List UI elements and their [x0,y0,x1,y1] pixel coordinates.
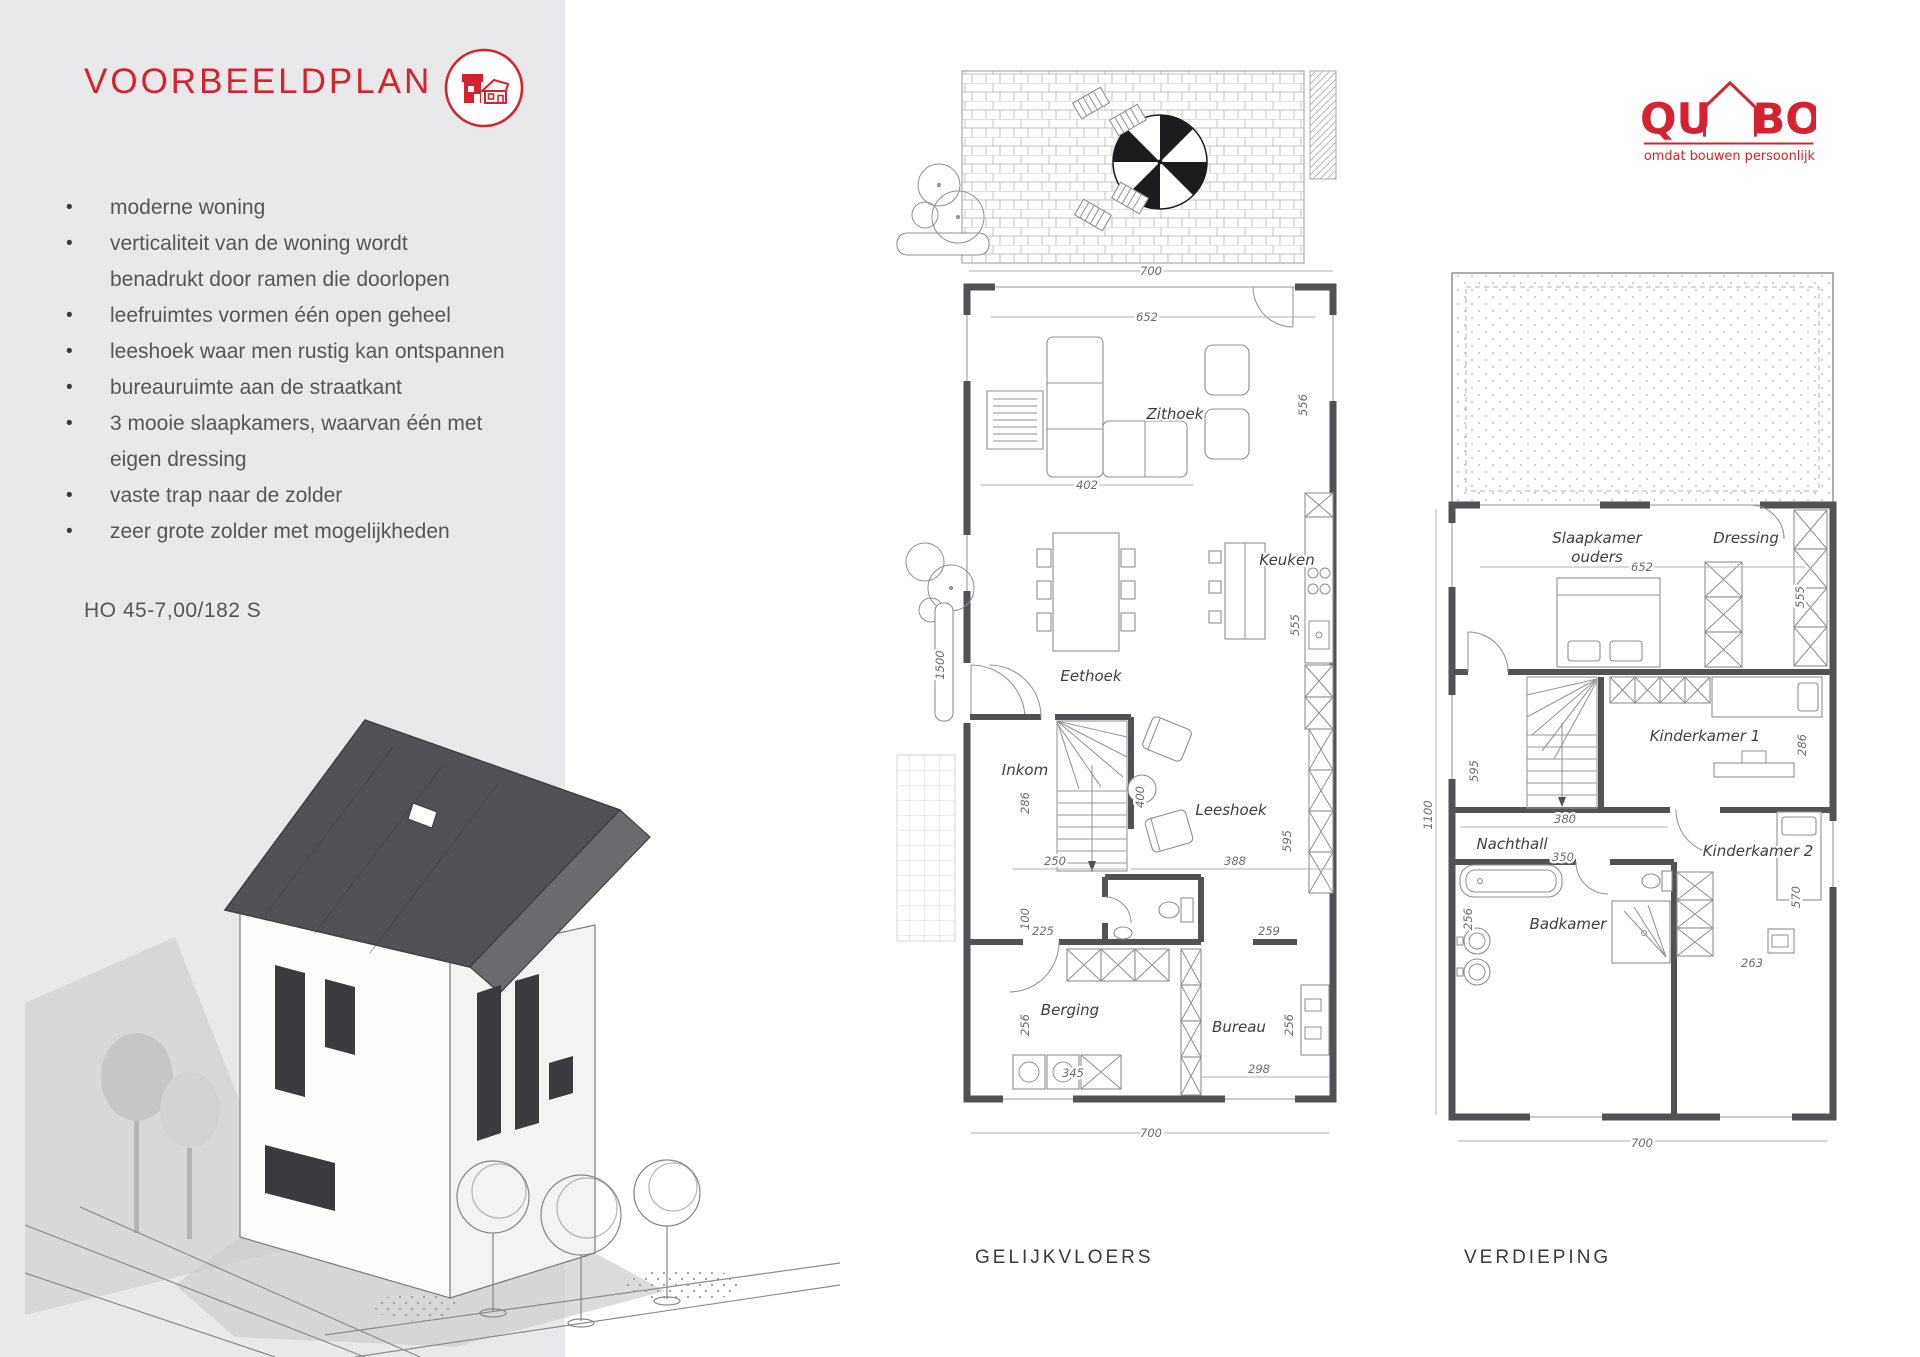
staircase [1527,677,1597,808]
list-item-text: moderne woning [110,196,265,220]
bullet-dot [66,448,110,449]
svg-text:298: 298 [1248,1062,1270,1076]
staircase [1057,721,1127,872]
room-label-zithoek: Zithoek [1146,405,1205,423]
zithoek-furniture [987,337,1249,477]
list-item: benadrukt door ramen die doorlopen [66,268,506,304]
svg-text:250: 250 [1044,854,1066,868]
room-label-slaapkamer-2: ouders [1571,548,1623,566]
list-item: •bureauruimte aan de straatkant [66,376,506,412]
list-item-text: vaste trap naar de zolder [110,484,342,508]
list-item: •zeer grote zolder met mogelijkheden [66,520,506,556]
bullet-dot: • [66,340,110,363]
svg-text:556: 556 [1296,394,1310,416]
svg-text:700: 700 [1631,1136,1653,1150]
svg-text:595: 595 [1280,830,1294,852]
planter [1310,71,1336,179]
room-label-kinderkamer2: Kinderkamer 2 [1703,842,1814,860]
svg-text:652: 652 [1631,560,1653,574]
svg-text:400: 400 [1133,786,1147,808]
svg-text:380: 380 [1554,812,1576,826]
bullet-dot: • [66,484,110,507]
caption-upper-floor: VERDIEPING [1464,1247,1611,1269]
logo-house-icon [1705,83,1756,137]
room-label-nachthall: Nachthall [1476,835,1548,853]
room-label-slaapkamer-1: Slaapkamer [1552,529,1642,547]
bullet-dot: • [66,304,110,327]
page-title: VOORBEELDPLAN [84,62,432,102]
list-item: eigen dressing [66,448,506,484]
feature-list: •moderne woning •verticaliteit van de wo… [66,196,506,556]
room-label-eethoek: Eethoek [1060,667,1123,685]
svg-text:345: 345 [1062,1066,1084,1080]
svg-text:256: 256 [1018,1014,1032,1036]
svg-text:1100: 1100 [1421,800,1435,829]
svg-text:1500: 1500 [933,650,947,679]
room-label-kinderkamer1: Kinderkamer 1 [1650,727,1761,745]
roof-terrace [1452,273,1833,505]
wc-fixtures [1114,898,1193,939]
list-item-text: zeer grote zolder met mogelijkheden [110,520,450,544]
room-label-leeshoek: Leeshoek [1195,801,1268,819]
slaapkamer-furniture [1557,578,1660,667]
eethoek-furniture [1037,533,1135,651]
dim-terrace-width: 700 [1140,264,1162,278]
caption-ground-floor: GELIJKVLOERS [975,1247,1154,1269]
list-item: •vaste trap naar de zolder [66,484,506,520]
bullet-dot: • [66,232,110,255]
berging-furniture [1013,949,1201,1095]
svg-text:652: 652 [1136,310,1158,324]
list-item-text: leeshoek waar men rustig kan ontspannen [110,340,505,364]
bullet-dot: • [66,412,110,435]
brochure-page: { "panel": { "title": "VOORBEELDPLAN", "… [0,0,1920,1357]
house [225,720,650,1298]
ground-floor-plan: 700 [895,65,1345,1150]
list-item: •3 mooie slaapkamers, waarvan één met [66,412,506,448]
svg-text:256: 256 [1461,908,1475,930]
list-item-text: leefruimtes vormen één open geheel [110,304,451,328]
house-sketch [25,585,840,1357]
svg-text:259: 259 [1258,924,1280,938]
shrubs [375,1293,459,1321]
entrance-path [897,755,955,941]
room-label-inkom: Inkom [1002,761,1048,779]
kinderkamer2-furniture [1677,812,1821,956]
shrubs [625,1269,745,1301]
list-item: •verticaliteit van de woning wordt [66,232,506,268]
svg-text:402: 402 [1076,478,1098,492]
bullet-dot: • [66,196,110,219]
list-item-text: 3 mooie slaapkamers, waarvan één met [110,412,482,436]
bullet-dot: • [66,520,110,543]
svg-text:555: 555 [1793,586,1807,608]
house-badge-icon [443,47,525,129]
svg-text:595: 595 [1467,760,1481,782]
svg-text:570: 570 [1789,886,1803,908]
logo-text-bo: BO [1752,95,1816,145]
svg-text:286: 286 [1795,734,1809,756]
room-label-dressing: Dressing [1713,529,1779,547]
svg-text:388: 388 [1224,854,1246,868]
svg-text:286: 286 [1018,792,1032,814]
svg-text:256: 256 [1282,1014,1296,1036]
svg-text:700: 700 [1140,1126,1162,1140]
svg-text:263: 263 [1741,956,1763,970]
terrace [897,71,1336,263]
room-label-berging: Berging [1041,1001,1099,1019]
qubo-logo: QU BO omdat bouwen persoonlijk is [1641,75,1816,165]
list-item-text: verticaliteit van de woning wordt [110,232,408,256]
interior-walls [970,665,1297,992]
list-item-text: benadrukt door ramen die doorlopen [110,268,450,292]
list-item: •leefruimtes vormen één open geheel [66,304,506,340]
room-label-badkamer: Badkamer [1530,915,1608,933]
svg-text:555: 555 [1288,614,1302,636]
list-item: •leeshoek waar men rustig kan ontspannen [66,340,506,376]
upper-floor-plan: 1100 652 555 595 286 380 350 570 256 263… [1420,265,1850,1172]
bullet-dot: • [66,376,110,399]
list-item-text: eigen dressing [110,448,247,472]
room-label-keuken: Keuken [1259,551,1314,569]
svg-text:350: 350 [1552,850,1574,864]
list-item: •moderne woning [66,196,506,232]
bureau-furniture [1301,985,1329,1055]
room-label-bureau: Bureau [1212,1018,1266,1036]
logo-tagline: omdat bouwen persoonlijk is [1644,149,1816,164]
list-item-text: bureauruimte aan de straatkant [110,376,402,400]
logo-text-qu: QU [1641,95,1711,145]
svg-text:225: 225 [1032,924,1054,938]
svg-text:100: 100 [1018,908,1032,930]
keuken-furniture [1209,493,1333,729]
bullet-dot [66,268,110,269]
